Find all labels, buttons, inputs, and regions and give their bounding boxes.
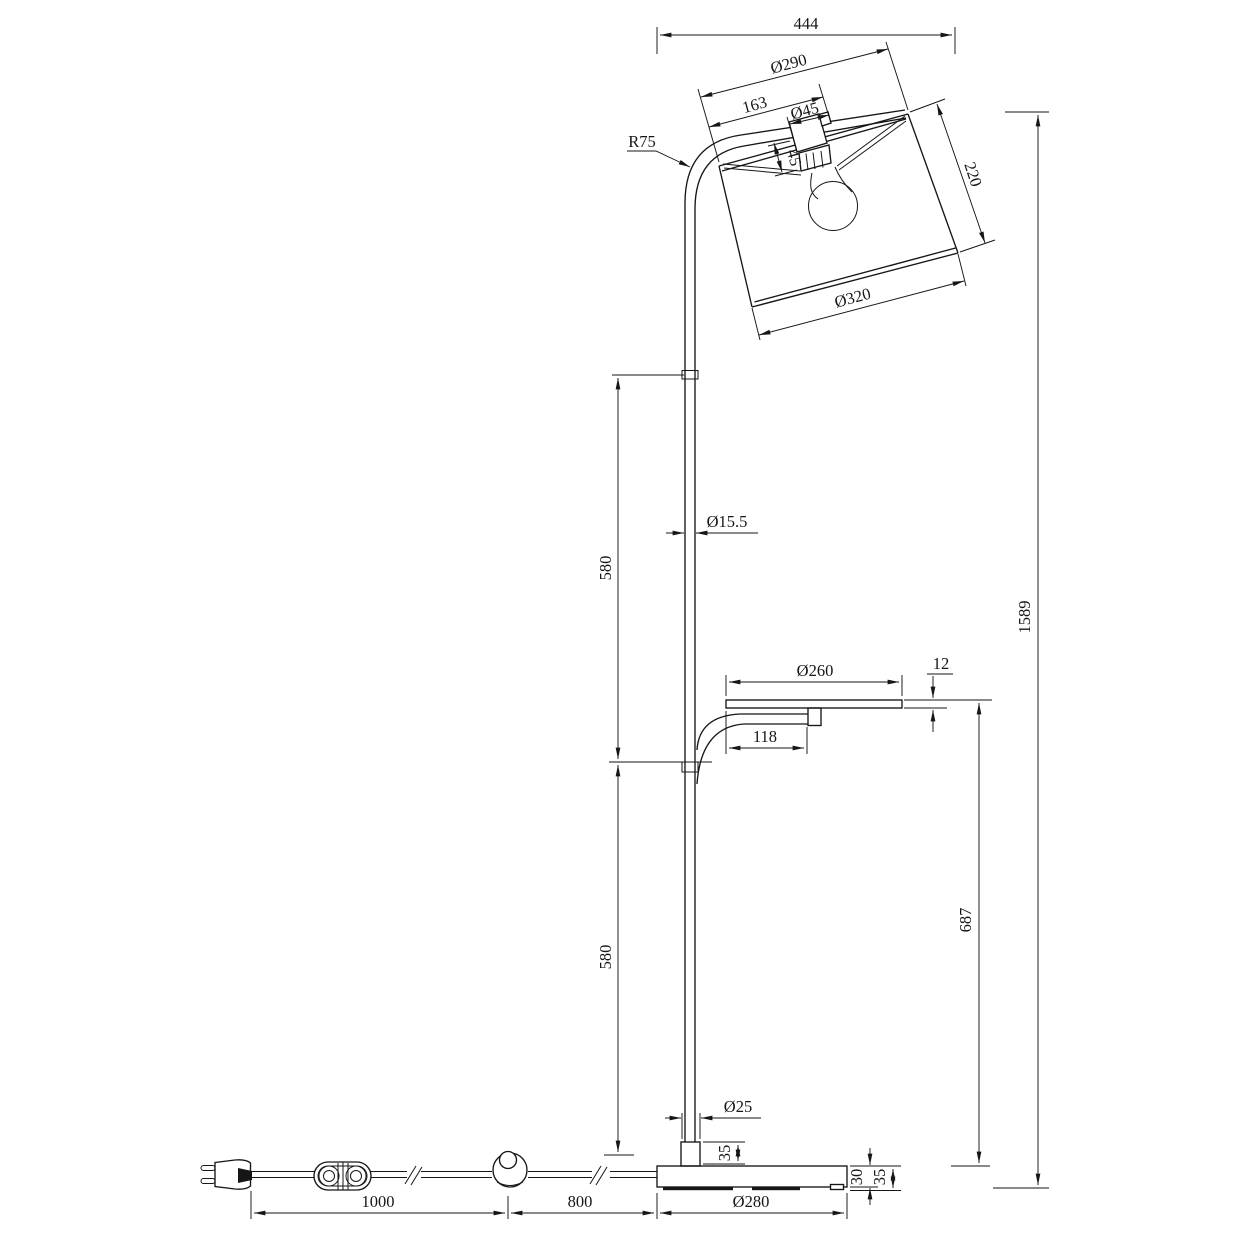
base <box>657 1166 847 1190</box>
floor-lamp-technical-drawing: 444 Ø290 163 Ø45 45 220 Ø320 R75 Ø15. <box>0 0 1240 1240</box>
plug-pin <box>201 1166 215 1171</box>
dim-label-shade-height: 220 <box>960 160 986 189</box>
dim-shade-bottom-diameter: Ø320 <box>752 254 966 340</box>
dim-label-tray-height: 687 <box>956 908 975 933</box>
cord-break-symbol <box>405 1166 422 1185</box>
light-bulb <box>809 167 858 231</box>
dim-shade-height: 220 <box>910 99 995 252</box>
dim-label-base-total-height: 35 <box>870 1169 889 1186</box>
foot-switch <box>493 1152 527 1188</box>
power-cord <box>252 1166 657 1185</box>
dim-label-overall-height: 1589 <box>1015 601 1034 634</box>
dim-tray-height: 687 <box>951 703 990 1166</box>
dim-base-diameter: Ø280 <box>657 1192 847 1219</box>
lamp-shade <box>719 114 958 307</box>
dim-label-pole-upper-section: 580 <box>596 556 615 581</box>
dim-overall-width: 444 <box>657 14 955 54</box>
dim-label-tray-diameter: Ø260 <box>797 661 834 680</box>
socket-cap <box>819 112 831 126</box>
base-foot-left <box>663 1187 733 1190</box>
dim-tray-arm-offset: 118 <box>726 711 807 754</box>
dim-label-collar-height: 35 <box>715 1145 734 1162</box>
base-foot-right <box>831 1185 844 1190</box>
dim-label-socket-offset: 163 <box>740 92 769 117</box>
dim-label-tray-arm-offset: 118 <box>753 727 777 746</box>
dim-label-pole-diameter: Ø15.5 <box>707 512 748 531</box>
dim-label-tray-thickness: 12 <box>933 654 950 673</box>
dim-cord-plug-to-switch: 1000 <box>251 1191 508 1219</box>
dim-label-cord-plug-to-switch: 1000 <box>362 1192 395 1211</box>
dim-tray-diameter: Ø260 <box>726 661 902 696</box>
pole <box>682 110 906 1142</box>
lamp-outline <box>201 110 958 1190</box>
switch-button <box>500 1152 517 1169</box>
tray-arm-block <box>808 708 821 726</box>
dim-label-base-diameter: Ø280 <box>733 1192 770 1211</box>
base-foot-middle <box>752 1187 800 1190</box>
dim-label-overall-width: 444 <box>794 14 819 33</box>
dim-label-cord-switch-to-base: 800 <box>568 1192 593 1211</box>
dim-pole-lower-section: 580 <box>596 765 634 1155</box>
bottom-collar <box>681 1142 700 1166</box>
dim-label-pole-lower-section: 580 <box>596 945 615 970</box>
dim-label-shade-bottom-diameter: Ø320 <box>832 284 872 312</box>
dim-cord-switch-to-base: 800 <box>511 1192 654 1213</box>
dim-pole-diameter: Ø15.5 <box>666 512 758 533</box>
drawing-sheet: 444 Ø290 163 Ø45 45 220 Ø320 R75 Ø15. <box>0 0 1240 1240</box>
reading-tray <box>697 700 902 784</box>
dim-collar-diameter: Ø25 <box>665 1097 761 1139</box>
dim-label-shade-top-diameter: Ø290 <box>768 50 808 78</box>
dim-label-base-plate-thickness: 30 <box>847 1169 866 1186</box>
euro-plug <box>201 1160 252 1189</box>
dim-label-collar-diameter: Ø25 <box>724 1097 752 1116</box>
dim-arm-bend-radius: R75 <box>627 132 690 167</box>
cord-coil <box>314 1162 371 1190</box>
plug-pin <box>201 1179 215 1184</box>
cord-break-symbol <box>590 1166 607 1185</box>
dim-label-arm-bend-radius: R75 <box>628 132 656 151</box>
dim-overall-height: 1589 <box>993 112 1049 1188</box>
dim-collar-height: 35 <box>703 1142 745 1164</box>
